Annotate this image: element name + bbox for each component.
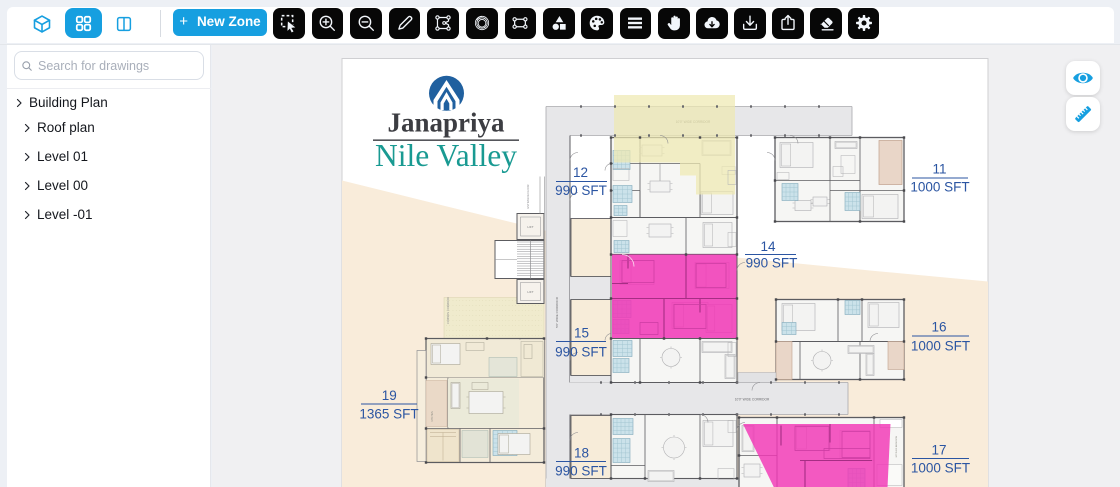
- svg-text:12: 12: [573, 165, 588, 180]
- svg-text:14: 14: [760, 239, 776, 254]
- svg-text:COMMON CORRIDOR: COMMON CORRIDOR: [446, 296, 450, 323]
- svg-text:ENTRANCE FLOOR: ENTRANCE FLOOR: [526, 184, 530, 208]
- svg-text:990 SFT: 990 SFT: [746, 255, 798, 270]
- svg-text:MOTHER BEDROOM: MOTHER BEDROOM: [896, 435, 898, 457]
- svg-text:19: 19: [382, 388, 397, 403]
- svg-text:11: 11: [932, 161, 946, 176]
- svg-text:990 SFT: 990 SFT: [555, 344, 607, 359]
- svg-text:18: 18: [574, 445, 589, 460]
- svg-text:5'0" WIDE CORRIDOR: 5'0" WIDE CORRIDOR: [555, 296, 559, 328]
- svg-text:990 SFT: 990 SFT: [555, 183, 607, 198]
- svg-text:1000 SFT: 1000 SFT: [911, 338, 970, 353]
- svg-text:LIFT: LIFT: [527, 290, 533, 294]
- svg-text:LIFT: LIFT: [527, 225, 533, 229]
- svg-text:KITCHEN: KITCHEN: [431, 410, 434, 421]
- svg-text:Nile Valley: Nile Valley: [375, 138, 517, 173]
- svg-text:1365 SFT: 1365 SFT: [359, 406, 418, 421]
- svg-text:16: 16: [931, 319, 946, 334]
- svg-text:Janapriya: Janapriya: [387, 107, 505, 137]
- svg-text:17: 17: [931, 442, 946, 457]
- svg-text:1000 SFT: 1000 SFT: [910, 179, 969, 194]
- svg-text:1000 SFT: 1000 SFT: [911, 460, 970, 475]
- svg-text:10'0" WIDE CORRIDOR: 10'0" WIDE CORRIDOR: [735, 397, 770, 401]
- svg-text:15: 15: [574, 325, 589, 340]
- svg-text:990 SFT: 990 SFT: [555, 463, 607, 478]
